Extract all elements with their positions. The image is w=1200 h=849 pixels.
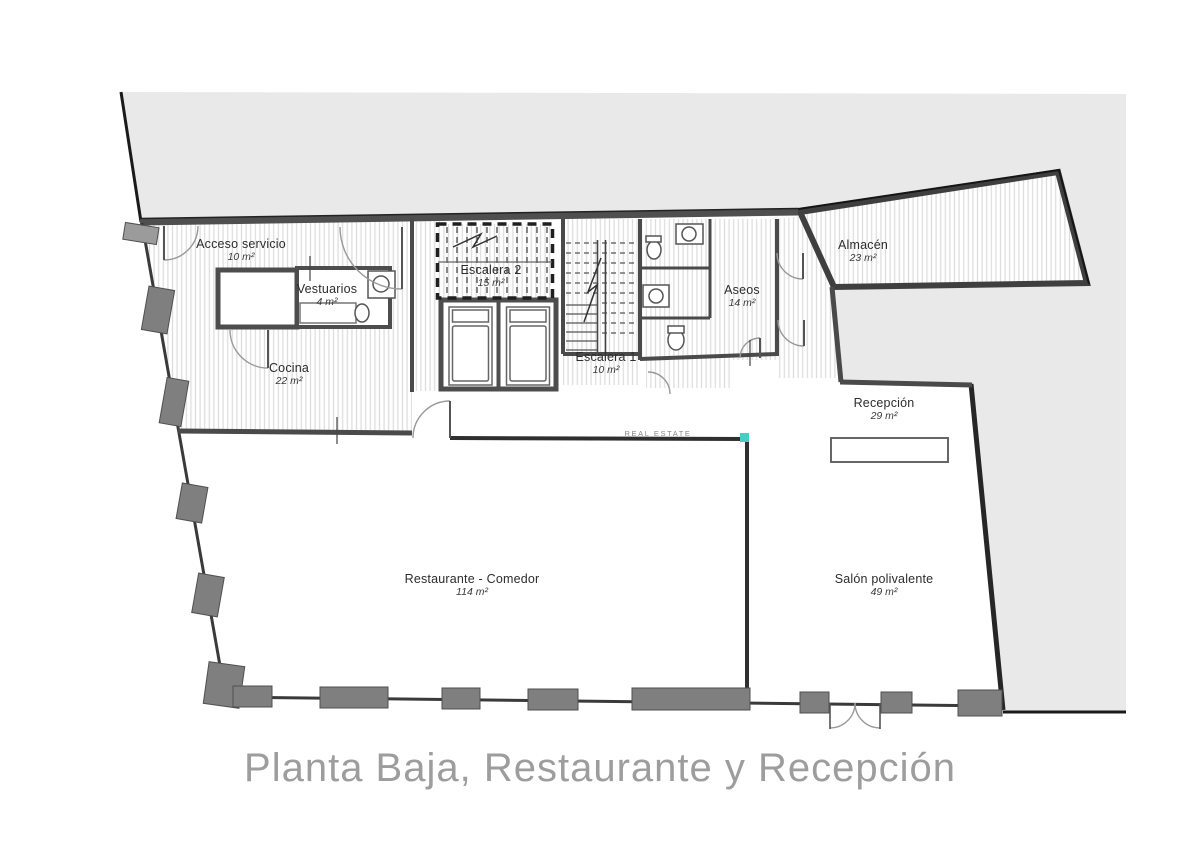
floor-plan-canvas xyxy=(0,0,1200,849)
room-label-restaurante: Restaurante - Comedor 114 m² xyxy=(405,572,540,599)
room-area: 10 m² xyxy=(575,364,636,377)
room-label-escalera-1: Escalera 1 10 m² xyxy=(575,350,636,377)
shower-fixture xyxy=(368,271,395,298)
room-name: Almacén xyxy=(838,238,888,252)
room-label-salon: Salón polivalente 49 m² xyxy=(835,572,934,599)
room-area: 23 m² xyxy=(838,252,888,265)
room-name: Escalera 2 xyxy=(460,263,521,277)
room-name: Cocina xyxy=(269,361,309,375)
room-area: 15 m² xyxy=(460,277,521,290)
room-name: Aseos xyxy=(724,283,760,297)
room-name: Escalera 1 xyxy=(575,350,636,364)
elevators xyxy=(441,300,556,389)
room-label-escalera-2: Escalera 2 15 m² xyxy=(460,263,521,290)
page-title: Planta Baja, Restaurante y Recepción xyxy=(244,746,956,791)
entrance-double-door xyxy=(830,703,880,729)
teal-marker xyxy=(740,433,749,442)
room-label-acceso-servicio: Acceso servicio 10 m² xyxy=(196,237,286,264)
toilet-fixture xyxy=(647,241,661,259)
room-area: 14 m² xyxy=(724,297,760,310)
room-label-cocina: Cocina 22 m² xyxy=(269,361,309,388)
room-name: Salón polivalente xyxy=(835,572,934,586)
room-label-recepcion: Recepción 29 m² xyxy=(854,396,915,423)
room-name: Vestuarios xyxy=(297,282,357,296)
watermark-text: REAL ESTATE xyxy=(612,429,704,438)
room-area: 49 m² xyxy=(835,586,934,599)
room-label-vestuarios: Vestuarios 4 m² xyxy=(297,282,357,309)
room-area: 29 m² xyxy=(854,410,915,423)
floor-plan-page: Acceso servicio 10 m² Vestuarios 4 m² Es… xyxy=(0,0,1200,849)
room-label-aseos: Aseos 14 m² xyxy=(724,283,760,310)
room-name: Acceso servicio xyxy=(196,237,286,251)
room-name: Recepción xyxy=(854,396,915,410)
room-area: 114 m² xyxy=(405,586,540,599)
room-label-almacen: Almacén 23 m² xyxy=(838,238,888,265)
reception-desk xyxy=(831,438,948,462)
room-area: 10 m² xyxy=(196,251,286,264)
room-area: 4 m² xyxy=(297,296,357,309)
room-name: Restaurante - Comedor xyxy=(405,572,540,586)
room-area: 22 m² xyxy=(269,375,309,388)
